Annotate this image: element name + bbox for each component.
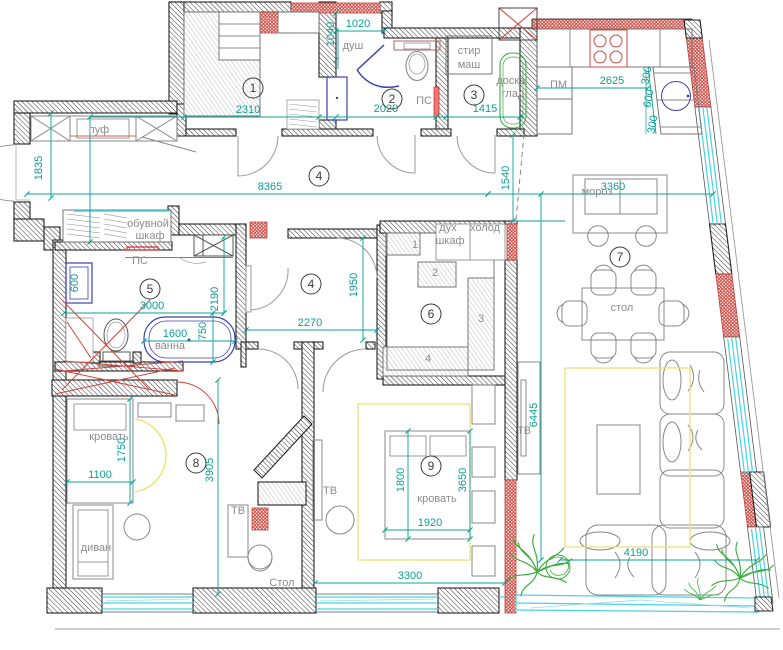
svg-text:1600: 1600	[163, 328, 187, 340]
svg-text:6: 6	[428, 307, 435, 321]
svg-text:ТВ: ТВ	[517, 425, 531, 437]
svg-text:ПС: ПС	[416, 95, 432, 107]
svg-text:душ: душ	[343, 40, 364, 52]
svg-text:1800: 1800	[395, 468, 407, 492]
svg-text:дух: дух	[439, 222, 457, 234]
svg-text:ПМ: ПМ	[550, 79, 567, 91]
svg-text:3: 3	[478, 313, 484, 325]
svg-text:4: 4	[316, 169, 323, 183]
svg-text:ТВ: ТВ	[323, 485, 337, 497]
svg-text:4: 4	[308, 277, 315, 291]
svg-text:обувной: обувной	[127, 218, 169, 230]
svg-text:2: 2	[432, 267, 438, 279]
svg-text:глад: глад	[502, 88, 525, 100]
svg-text:шкаф: шкаф	[435, 235, 464, 247]
svg-text:3000: 3000	[140, 300, 164, 312]
svg-text:2310: 2310	[236, 104, 260, 116]
svg-text:стир: стир	[458, 45, 481, 57]
svg-text:1020: 1020	[346, 18, 370, 30]
svg-text:3650: 3650	[457, 468, 469, 492]
svg-text:4190: 4190	[624, 547, 648, 559]
svg-text:1: 1	[250, 81, 257, 95]
svg-text:7: 7	[617, 250, 624, 264]
svg-text:2190: 2190	[209, 287, 221, 311]
svg-text:1950: 1950	[348, 273, 360, 297]
svg-text:доска: доска	[496, 75, 526, 87]
svg-text:1835: 1835	[33, 156, 45, 180]
svg-text:5: 5	[147, 282, 154, 296]
svg-text:маш: маш	[458, 59, 481, 71]
svg-text:3300: 3300	[398, 570, 422, 582]
svg-text:кровать: кровать	[417, 493, 457, 505]
svg-text:1100: 1100	[88, 469, 112, 481]
svg-text:750: 750	[197, 322, 209, 340]
svg-text:3: 3	[471, 88, 478, 102]
svg-text:Стол: Стол	[269, 577, 294, 589]
svg-text:1040: 1040	[325, 22, 337, 46]
svg-text:стол: стол	[611, 302, 634, 314]
svg-text:6445: 6445	[528, 403, 540, 427]
svg-text:8365: 8365	[258, 181, 282, 193]
svg-text:диван: диван	[81, 542, 111, 554]
svg-text:мороз: мороз	[582, 186, 613, 198]
svg-text:2625: 2625	[600, 75, 624, 87]
svg-text:кровать: кровать	[89, 431, 129, 443]
svg-text:9: 9	[428, 459, 435, 473]
svg-text:холод: холод	[470, 222, 501, 234]
svg-text:600: 600	[69, 274, 81, 292]
svg-text:8: 8	[193, 456, 200, 470]
svg-text:пуф: пуф	[89, 124, 109, 136]
svg-text:ТВ: ТВ	[231, 505, 245, 517]
svg-text:4: 4	[425, 353, 431, 365]
svg-text:ванна: ванна	[155, 340, 186, 352]
svg-text:шкаф: шкаф	[135, 230, 164, 242]
svg-text:1540: 1540	[500, 166, 512, 190]
svg-text:2: 2	[389, 92, 396, 106]
svg-text:2270: 2270	[298, 317, 322, 329]
svg-text:1920: 1920	[418, 517, 442, 529]
svg-text:1: 1	[412, 239, 418, 251]
svg-text:ПС: ПС	[132, 255, 148, 267]
